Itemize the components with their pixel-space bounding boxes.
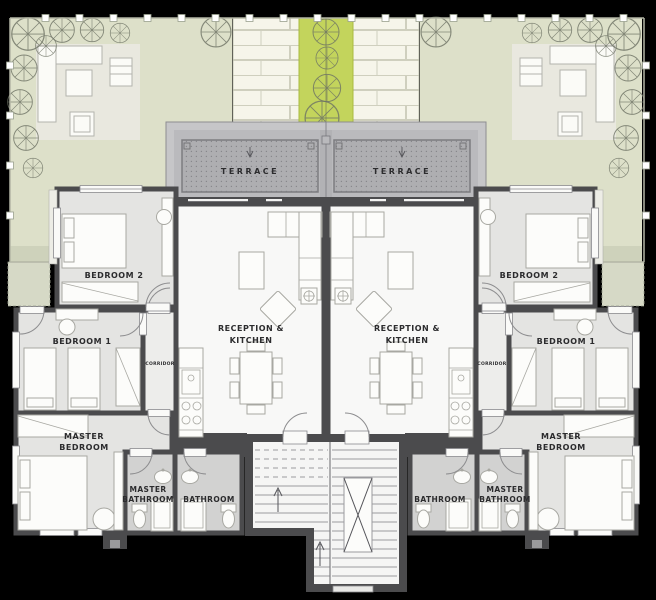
room-label-master-bathroom-right-line1: MASTER [486, 485, 523, 494]
room-label-corridor-left: CORRIDOR [145, 361, 174, 367]
room-label-master-bedroom-left-line1: MASTER [64, 432, 104, 441]
floor-plan-canvas: TERRACE TERRACE RECEPTION & KITCHEN RECE… [0, 0, 656, 600]
room-label-terrace-right: TERRACE [373, 167, 431, 176]
room-label-master-bedroom-right-line2: BEDROOM [536, 443, 585, 452]
stair-entry-window [333, 586, 373, 592]
room-label-bathroom-right: BATHROOM [414, 495, 466, 504]
brick-path-left [233, 18, 299, 124]
room-label-master-bedroom-left-line2: BEDROOM [59, 443, 108, 452]
room-label-master-bathroom-right-line2: BATHROOM [479, 495, 531, 504]
room-label-terrace-left: TERRACE [221, 167, 279, 176]
brick-path-right [353, 18, 419, 124]
room-label-bedroom1-left: BEDROOM 1 [53, 337, 112, 346]
room-label-reception-left-line1: RECEPTION & [218, 324, 284, 333]
room-label-bathroom-left: BATHROOM [183, 495, 235, 504]
room-label-master-bathroom-left-line2: BATHROOM [122, 495, 174, 504]
terrace [166, 122, 486, 209]
room-label-reception-right-line1: RECEPTION & [374, 324, 440, 333]
floor-plan: TERRACE TERRACE RECEPTION & KITCHEN RECE… [0, 0, 656, 600]
room-label-corridor-right: CORRIDOR [477, 361, 506, 367]
room-label-bedroom2-right: BEDROOM 2 [500, 271, 559, 280]
room-label-reception-right-line2: KITCHEN [386, 336, 429, 345]
room-label-reception-left-line2: KITCHEN [230, 336, 273, 345]
room-label-master-bedroom-right-line1: MASTER [541, 432, 581, 441]
room-label-master-bathroom-left-line1: MASTER [129, 485, 166, 494]
room-label-bedroom1-right: BEDROOM 1 [537, 337, 596, 346]
room-label-bedroom2-left: BEDROOM 2 [85, 271, 144, 280]
